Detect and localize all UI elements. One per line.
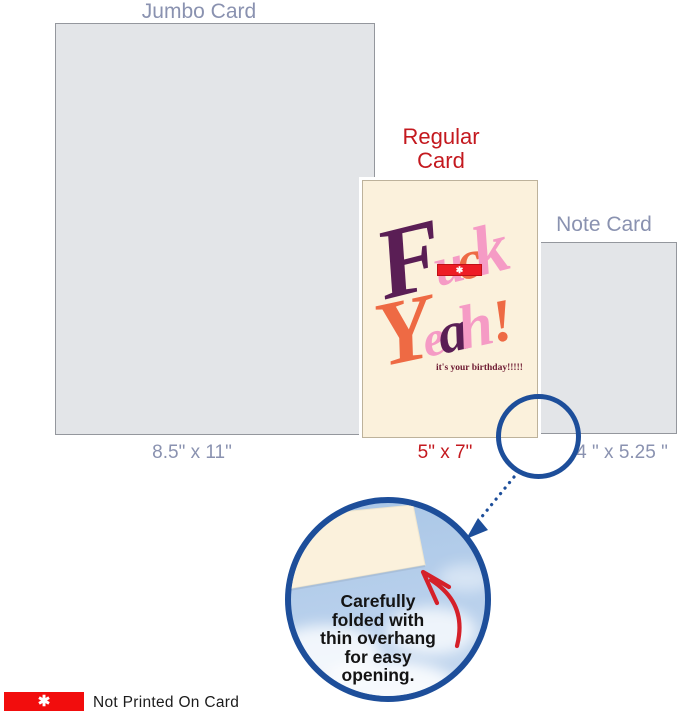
asterisk-icon: ✱ <box>456 266 464 275</box>
legend-red-swatch: ✱ <box>4 692 84 711</box>
corner-highlight-circle <box>496 394 581 479</box>
card-tagline: it's your birthday!!!!! <box>436 363 523 373</box>
dotted-connector-line <box>480 477 514 519</box>
legend-text: Not Printed On Card <box>93 694 239 712</box>
size-comparison-graphic: Jumbo Card Note Card Regular Card F u c … <box>0 0 679 714</box>
asterisk-icon: ✱ <box>38 694 51 709</box>
regular-card-label-line2: Card <box>402 149 479 173</box>
regular-card-dimensions: 5" x 7" <box>418 442 473 464</box>
regular-card-label: Regular Card <box>402 125 479 173</box>
regular-card-label-line1: Regular <box>402 125 479 149</box>
note-card-dimensions: 4 " x 5.25 " <box>576 442 668 464</box>
callout-line: opening. <box>295 666 461 685</box>
callout-line: folded with <box>295 611 461 630</box>
callout-text: Carefully folded with thin overhang for … <box>295 592 461 685</box>
censor-bar: ✱ <box>437 264 482 276</box>
regular-card-front: F u c k Y e a h ! ✱ it's your birthday!!… <box>362 180 538 438</box>
callout-line: for easy <box>295 648 461 667</box>
callout-line: thin overhang <box>295 629 461 648</box>
zoom-callout-circle: Carefully folded with thin overhang for … <box>285 497 491 702</box>
jumbo-card-dimensions: 8.5" x 11" <box>152 442 232 464</box>
jumbo-card-label: Jumbo Card <box>142 0 256 24</box>
jumbo-card-rectangle <box>55 23 375 435</box>
callout-line: Carefully <box>295 592 461 611</box>
note-card-label: Note Card <box>556 213 652 237</box>
